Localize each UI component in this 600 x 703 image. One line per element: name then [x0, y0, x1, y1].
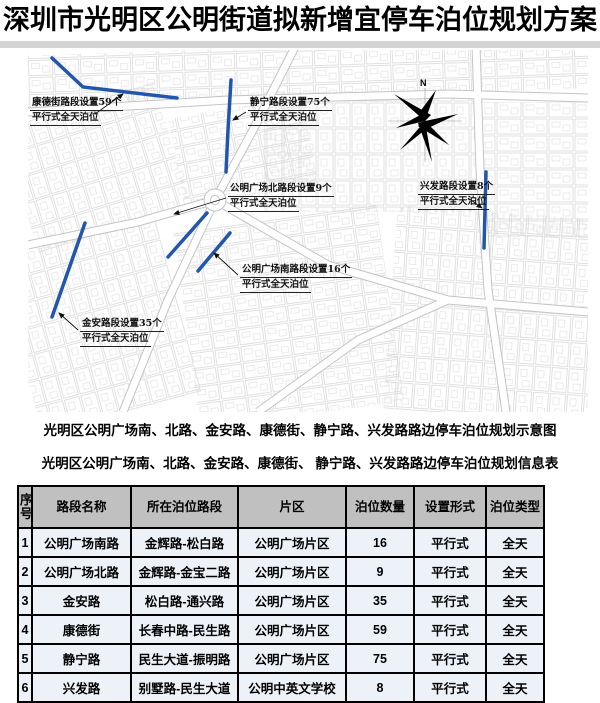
annotation-kangde: 康德街路段设置59个 平行式全天泊位	[30, 96, 123, 126]
annotation-line: 平行式全天泊位	[30, 111, 101, 126]
title-separator	[0, 41, 600, 48]
cell-form: 平行式	[414, 557, 486, 586]
cell-segment: 金辉路-松白路	[131, 528, 238, 557]
cell-type: 全天	[486, 644, 544, 673]
annotation-jinan: 金安路段设置35个 平行式全天泊位	[80, 317, 164, 347]
cell-form: 平行式	[414, 586, 486, 615]
header-district: 片区	[238, 486, 346, 528]
annotation-xingfa: 兴发路段设置8个 平行式全天泊位	[418, 180, 495, 210]
cell-seq: 5	[18, 644, 32, 673]
table-row: 5 静宁路 民生大道-振明路 公明广场片区 75 平行式 全天	[18, 644, 544, 673]
header-type: 泊位类型	[486, 486, 544, 528]
table-row: 2 公明广场北路 金辉路-金宝二路 公明广场片区 9 平行式 全天	[18, 557, 544, 586]
cell-form: 平行式	[414, 673, 486, 702]
table-row: 4 康德街 长春中路-民生路 公明广场片区 59 平行式 全天	[18, 615, 544, 644]
table-row: 6 兴发路 别墅路-民生大道 公明中英文学校 8 平行式 全天	[18, 673, 544, 702]
parking-info-table: 序号 路段名称 所在泊位路段 片区 泊位数量 设置形式 泊位类型 1 公明广场南…	[17, 485, 545, 703]
cell-road: 公明广场南路	[32, 528, 131, 557]
cell-seq: 2	[18, 557, 32, 586]
annotation-plaza-south: 公明广场南路段设置16个 平行式全天泊位	[240, 263, 352, 293]
cell-district: 公明广场片区	[238, 586, 346, 615]
annotation-plaza-north: 公明广场北路段设置9个 平行式全天泊位	[228, 182, 334, 212]
cell-road: 金安路	[32, 586, 131, 615]
table-header-row: 序号 路段名称 所在泊位路段 片区 泊位数量 设置形式 泊位类型	[18, 486, 544, 528]
cell-type: 全天	[486, 673, 544, 702]
table-caption: 光明区公明广场南、北路、金安路、康德街、 静宁路、兴发路路边停车泊位规划信息表	[0, 452, 600, 472]
annotation-line: 平行式全天泊位	[240, 278, 311, 293]
cell-seq: 3	[18, 586, 32, 615]
cell-district: 公明中英文学校	[238, 673, 346, 702]
cell-segment: 别墅路-民生大道	[131, 673, 238, 702]
cell-form: 平行式	[414, 615, 486, 644]
cell-district: 公明广场片区	[238, 615, 346, 644]
table-row: 1 公明广场南路 金辉路-松白路 公明广场片区 16 平行式 全天	[18, 528, 544, 557]
cell-type: 全天	[486, 557, 544, 586]
cell-district: 公明广场片区	[238, 644, 346, 673]
north-label: N	[420, 78, 427, 88]
annotation-line: 公明广场南路段设置16个	[240, 263, 352, 278]
annotation-line: 平行式全天泊位	[418, 195, 489, 210]
cell-count: 16	[346, 528, 414, 557]
cell-road: 静宁路	[32, 644, 131, 673]
cell-seq: 6	[18, 673, 32, 702]
cell-segment: 松白路-通兴路	[131, 586, 238, 615]
annotation-line: 平行式全天泊位	[228, 197, 299, 212]
cell-count: 59	[346, 615, 414, 644]
cell-count: 35	[346, 586, 414, 615]
annotation-line: 康德街路段设置59个	[30, 96, 123, 111]
cell-count: 75	[346, 644, 414, 673]
annotation-line: 兴发路段设置8个	[418, 180, 495, 195]
cell-road: 公明广场北路	[32, 557, 131, 586]
cell-district: 公明广场片区	[238, 557, 346, 586]
cell-seq: 4	[18, 615, 32, 644]
header-count: 泊位数量	[346, 486, 414, 528]
cell-seq: 1	[18, 528, 32, 557]
planning-map: N 康德街路段设置59个 平行式全天泊位 静宁路段设置75个 平行式全天泊位	[28, 50, 588, 412]
cell-type: 全天	[486, 528, 544, 557]
header-form: 设置形式	[414, 486, 486, 528]
cell-count: 9	[346, 557, 414, 586]
header-seq: 序号	[18, 486, 32, 528]
page-title: 深圳市光明区公明街道拟新增宜停车泊位规划方案	[0, 0, 600, 38]
cell-type: 全天	[486, 586, 544, 615]
annotation-line: 平行式全天泊位	[80, 332, 151, 347]
annotation-jingning: 静宁路段设置75个 平行式全天泊位	[248, 96, 332, 126]
annotation-line: 公明广场北路段设置9个	[228, 182, 334, 197]
cell-district: 公明广场片区	[238, 528, 346, 557]
table-row: 3 金安路 松白路-通兴路 公明广场片区 35 平行式 全天	[18, 586, 544, 615]
cell-road: 康德街	[32, 615, 131, 644]
cell-road: 兴发路	[32, 673, 131, 702]
cell-segment: 长春中路-民生路	[131, 615, 238, 644]
cell-count: 8	[346, 673, 414, 702]
cell-form: 平行式	[414, 528, 486, 557]
header-segment: 所在泊位路段	[131, 486, 238, 528]
cell-form: 平行式	[414, 644, 486, 673]
annotation-line: 金安路段设置35个	[80, 317, 164, 332]
annotation-line: 静宁路段设置75个	[248, 96, 332, 111]
cell-segment: 民生大道-振明路	[131, 644, 238, 673]
annotation-line: 平行式全天泊位	[248, 111, 319, 126]
cell-type: 全天	[486, 615, 544, 644]
header-road: 路段名称	[32, 486, 131, 528]
cell-segment: 金辉路-金宝二路	[131, 557, 238, 586]
map-caption: 光明区公明广场南、北路、金安路、康德街、静宁路、兴发路路边停车泊位规划示意图	[0, 419, 600, 439]
